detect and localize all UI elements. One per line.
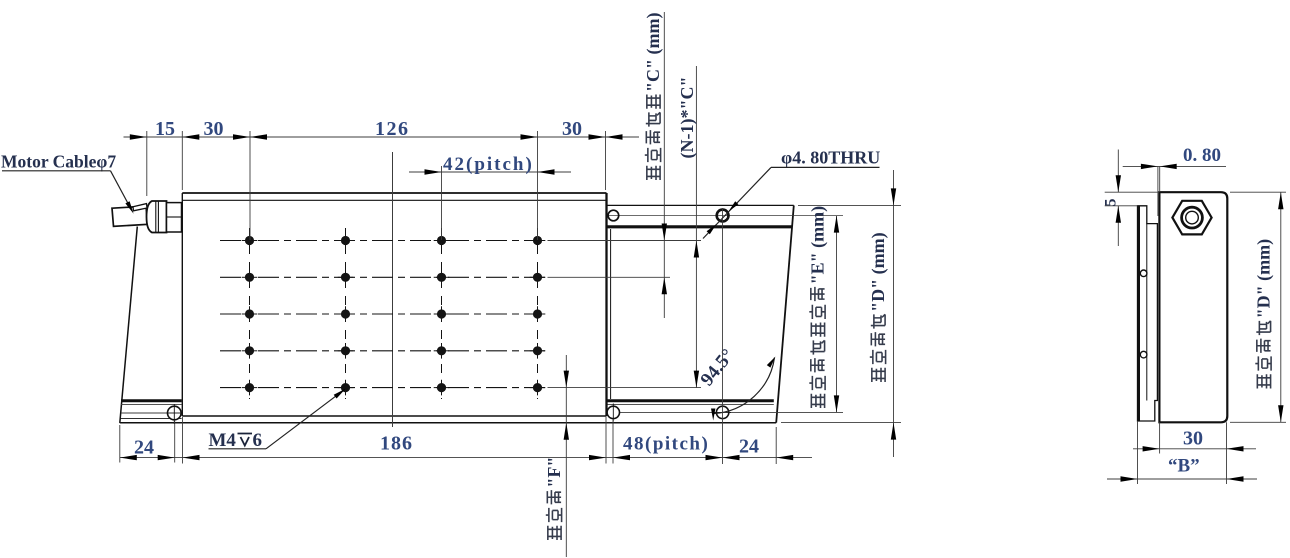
svg-text:42(pitch): 42(pitch) (443, 154, 534, 175)
svg-text:48(pitch): 48(pitch) (623, 434, 709, 455)
svg-text:"E" (mm): "E" (mm) (808, 206, 829, 284)
svg-text:24: 24 (134, 437, 154, 459)
svg-text:30: 30 (1183, 428, 1203, 450)
svg-text:“B”: “B” (1168, 456, 1200, 477)
svg-text:24: 24 (739, 436, 759, 458)
svg-text:"F": "F" (544, 457, 564, 488)
svg-text:M4: M4 (209, 430, 237, 451)
svg-text:"D" (mm): "D" (mm) (1254, 239, 1275, 318)
svg-text:126: 126 (375, 118, 410, 140)
svg-text:Motor Cableφ7: Motor Cableφ7 (1, 152, 116, 172)
svg-text:φ4. 80THRU: φ4. 80THRU (781, 148, 880, 168)
svg-text:"C" (mm): "C" (mm) (643, 13, 664, 92)
svg-text:0. 80: 0. 80 (1183, 145, 1221, 166)
svg-text:30: 30 (562, 118, 582, 140)
svg-text:(N-1)*"C": (N-1)*"C" (677, 77, 698, 159)
svg-text:186: 186 (380, 433, 413, 455)
svg-text:30: 30 (204, 118, 224, 140)
svg-text:"D" (mm): "D" (mm) (868, 232, 889, 311)
svg-text:15: 15 (155, 118, 175, 140)
svg-text:6: 6 (253, 430, 263, 451)
svg-text:5: 5 (1103, 199, 1120, 207)
